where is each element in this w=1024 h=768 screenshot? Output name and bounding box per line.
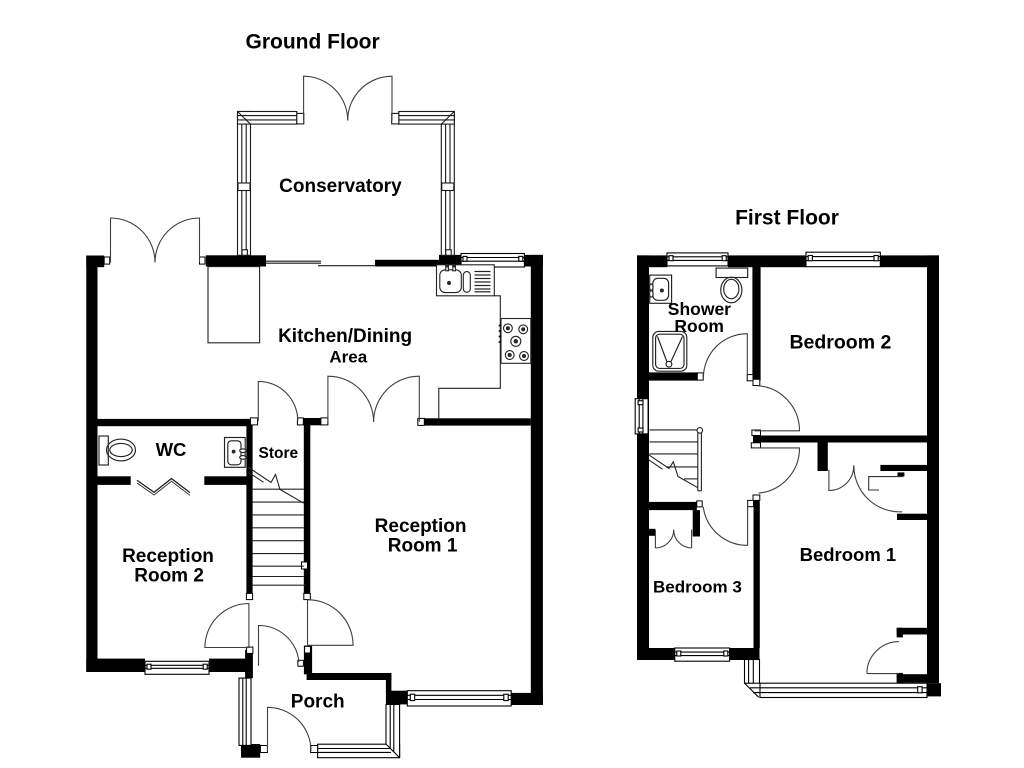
svg-text:Bedroom 3: Bedroom 3 xyxy=(653,578,742,597)
svg-text:Bedroom 2: Bedroom 2 xyxy=(789,331,891,353)
svg-text:Store: Store xyxy=(258,445,298,462)
svg-text:First Floor: First Floor xyxy=(735,207,839,230)
svg-text:Reception: Reception xyxy=(375,516,467,537)
svg-text:Room: Room xyxy=(674,316,724,336)
svg-text:Kitchen/Dining: Kitchen/Dining xyxy=(278,326,412,347)
svg-text:Room 2: Room 2 xyxy=(134,566,204,587)
svg-text:Area: Area xyxy=(329,347,367,366)
svg-text:Room 1: Room 1 xyxy=(388,536,458,557)
svg-text:Bedroom 1: Bedroom 1 xyxy=(800,544,897,565)
svg-text:Porch: Porch xyxy=(291,692,345,713)
svg-text:Reception: Reception xyxy=(122,546,214,567)
svg-text:WC: WC xyxy=(156,439,187,460)
svg-text:Conservatory: Conservatory xyxy=(279,176,402,197)
svg-text:Ground Floor: Ground Floor xyxy=(246,31,380,54)
